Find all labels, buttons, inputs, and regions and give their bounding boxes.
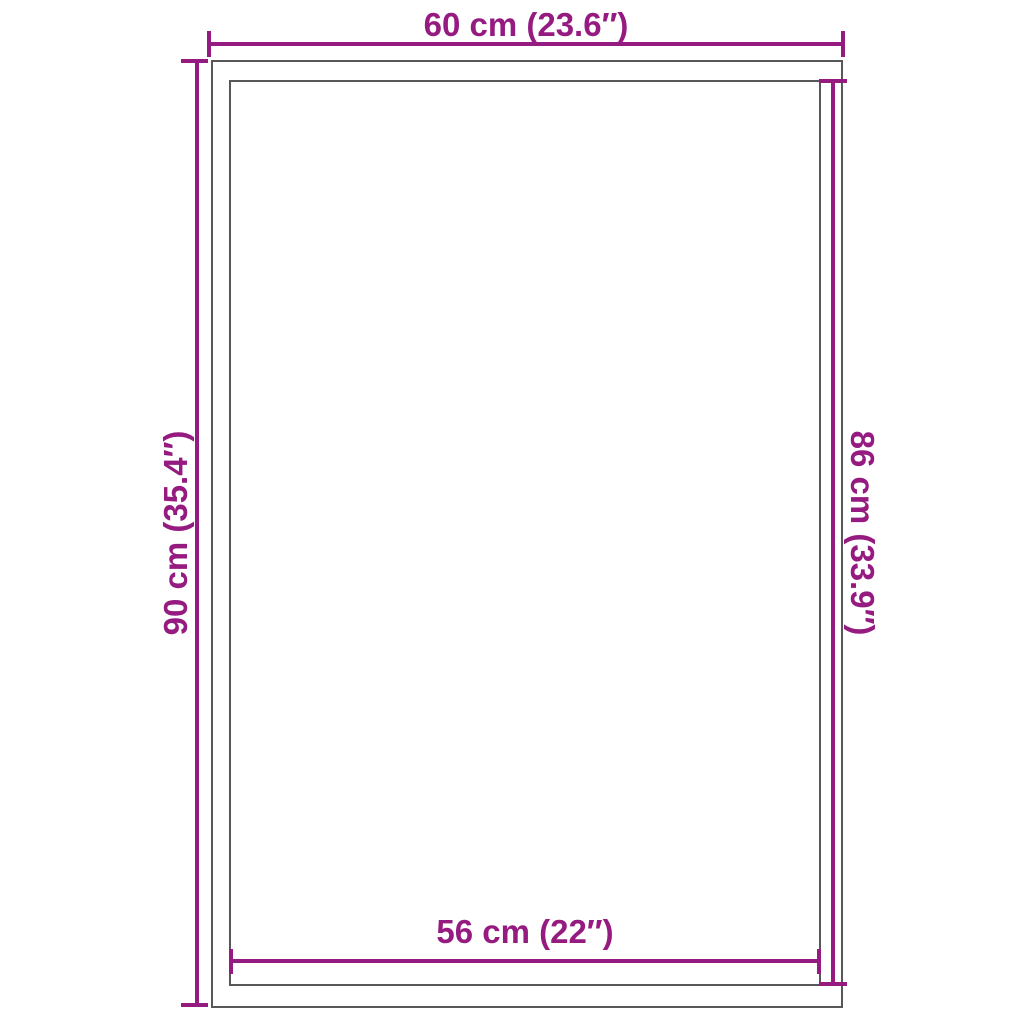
bottom-dimension-line	[231, 959, 820, 963]
top-dimension-tick-left	[207, 31, 211, 57]
left-dimension-label: 90 cm (35.4″)	[157, 431, 195, 636]
right-dimension-label: 86 cm (33.9″)	[843, 431, 881, 636]
right-dimension-tick-bottom	[819, 982, 847, 986]
top-dimension-tick-right	[841, 31, 845, 57]
right-dimension-line	[831, 81, 835, 985]
inner-rectangle	[229, 80, 821, 986]
bottom-dimension-tick-right	[817, 949, 821, 974]
bottom-dimension-label: 56 cm (22″)	[225, 913, 825, 951]
top-dimension-label: 60 cm (23.6″)	[226, 6, 826, 44]
bottom-dimension-tick-left	[229, 949, 233, 974]
left-dimension-tick-bottom	[181, 1003, 208, 1007]
dimension-diagram: 60 cm (23.6″) 90 cm (35.4″) 86 cm (33.9″…	[0, 0, 1024, 1024]
right-dimension-tick-top	[819, 79, 847, 83]
left-dimension-tick-top	[181, 59, 208, 63]
left-dimension-line	[195, 60, 199, 1007]
